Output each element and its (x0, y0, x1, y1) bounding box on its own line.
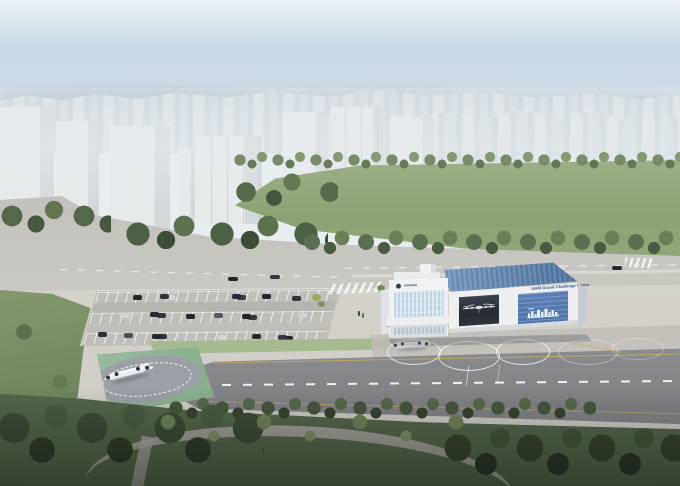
rooftop-unit (420, 264, 436, 273)
apron-circle-marking (612, 338, 664, 360)
plaza-shrub (318, 301, 325, 307)
hangar-opening (459, 295, 499, 327)
plaza-shrub (312, 294, 321, 301)
aircraft-shadow (397, 347, 427, 352)
pedestrian (358, 311, 360, 316)
parking-lot (80, 288, 341, 346)
park-scattered-trees (150, 402, 480, 454)
tree-row-left (0, 196, 111, 242)
office-tower (389, 278, 448, 338)
apron-circle-marking (558, 339, 618, 365)
glass-curtain-wall (392, 290, 445, 318)
tree-row-roadside (300, 226, 680, 264)
parking-stall-row (89, 311, 333, 324)
ministry-emblem-icon (396, 283, 401, 288)
hangar-drone-icon (461, 301, 497, 316)
parked-cars (96, 293, 105, 298)
skyline-graphic-icon (526, 305, 560, 319)
tree-cluster-center (118, 210, 328, 260)
tower-base (390, 324, 447, 338)
tree-cluster-upper (226, 168, 338, 216)
cars-on-road (142, 275, 152, 279)
base-glass (394, 326, 444, 335)
hangar-door (518, 291, 568, 324)
building-end-face (578, 283, 587, 329)
pedestrian (362, 313, 364, 318)
rendering-canvas: UAM Grand Challenge Korea (0, 0, 680, 486)
